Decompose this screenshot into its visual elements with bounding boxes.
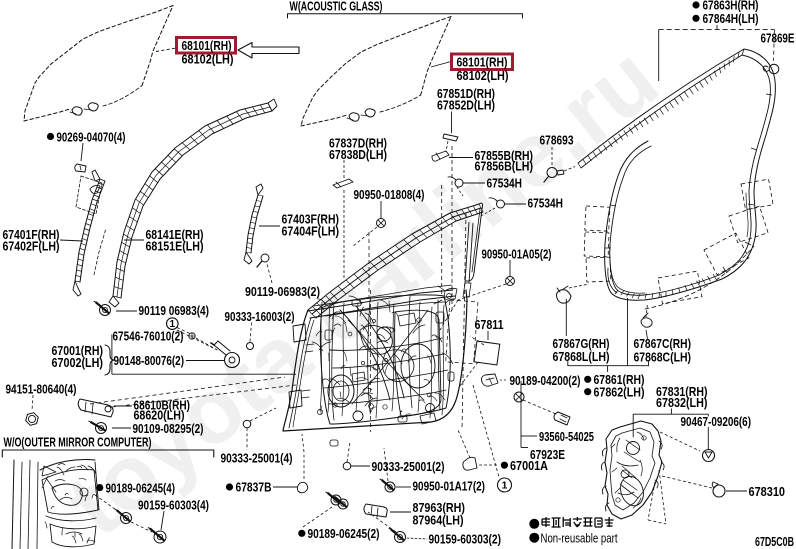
- svg-text:67534H: 67534H: [528, 195, 564, 210]
- svg-text:68102(LH): 68102(LH): [182, 52, 234, 67]
- svg-text:90333-25001(2): 90333-25001(2): [372, 459, 445, 474]
- svg-text:67D5C0B: 67D5C0B: [755, 534, 794, 549]
- svg-text:67402F(LH): 67402F(LH): [3, 239, 60, 254]
- svg-text:90119-06983(2): 90119-06983(2): [245, 284, 320, 299]
- svg-text:93560-54025: 93560-54025: [539, 429, 594, 444]
- svg-text:67001A: 67001A: [510, 458, 549, 473]
- svg-text:67838D(LH): 67838D(LH): [329, 147, 387, 162]
- svg-text:67832(LH): 67832(LH): [656, 395, 708, 410]
- svg-text:678693: 678693: [540, 132, 574, 147]
- svg-text:90189-04200(2): 90189-04200(2): [510, 373, 581, 388]
- svg-text:Non-reusable part: Non-reusable part: [541, 530, 618, 545]
- svg-text:90467-09206(6): 90467-09206(6): [681, 414, 752, 429]
- svg-text:67404F(LH): 67404F(LH): [282, 224, 340, 239]
- svg-text:90189-06245(2): 90189-06245(2): [308, 526, 380, 541]
- svg-text:W(ACOUSTIC GLASS): W(ACOUSTIC GLASS): [290, 0, 383, 13]
- svg-text:90950-01A05(2): 90950-01A05(2): [482, 246, 552, 261]
- svg-text:67856B(LH): 67856B(LH): [475, 159, 534, 174]
- svg-text:94151-80640(4): 94151-80640(4): [6, 381, 77, 396]
- svg-text:68102(LH): 68102(LH): [457, 68, 509, 83]
- svg-text:90333-16003(2): 90333-16003(2): [225, 309, 295, 324]
- svg-text:90159-60303(4): 90159-60303(4): [138, 497, 209, 512]
- svg-text:67546-76010(2): 67546-76010(2): [113, 328, 184, 343]
- svg-text:67862(LH): 67862(LH): [594, 384, 645, 399]
- svg-text:67811: 67811: [475, 317, 504, 332]
- svg-text:68151E(LH): 68151E(LH): [146, 239, 204, 254]
- svg-text:1: 1: [502, 481, 508, 492]
- svg-text:67852D(LH): 67852D(LH): [437, 97, 495, 112]
- svg-text:678310: 678310: [749, 484, 786, 499]
- svg-text:90950-01808(4): 90950-01808(4): [354, 187, 425, 202]
- svg-text:87964(LH): 87964(LH): [413, 513, 464, 528]
- svg-text:90148-80076(2): 90148-80076(2): [114, 353, 185, 368]
- svg-text:67837B: 67837B: [236, 479, 272, 494]
- svg-text:67002(LH): 67002(LH): [52, 355, 104, 370]
- svg-text:90333-25001(4): 90333-25001(4): [221, 451, 293, 466]
- svg-text:90269-04070(4): 90269-04070(4): [57, 129, 126, 144]
- svg-text:90159-60303(2): 90159-60303(2): [429, 531, 502, 546]
- svg-text:67869E: 67869E: [761, 31, 795, 46]
- svg-text:67868L(LH): 67868L(LH): [553, 349, 610, 364]
- svg-text:90119 06983(4): 90119 06983(4): [139, 303, 210, 318]
- svg-text:90189-06245(4): 90189-06245(4): [106, 480, 176, 495]
- svg-text:W/O(OUTER MIRROR COMPUTER): W/O(OUTER MIRROR COMPUTER): [4, 434, 152, 449]
- svg-text:67868C(LH): 67868C(LH): [634, 350, 692, 365]
- svg-text:67864H(LH): 67864H(LH): [703, 11, 759, 26]
- svg-text:90950-01A17(2): 90950-01A17(2): [413, 478, 486, 493]
- svg-text:67534H: 67534H: [487, 175, 523, 190]
